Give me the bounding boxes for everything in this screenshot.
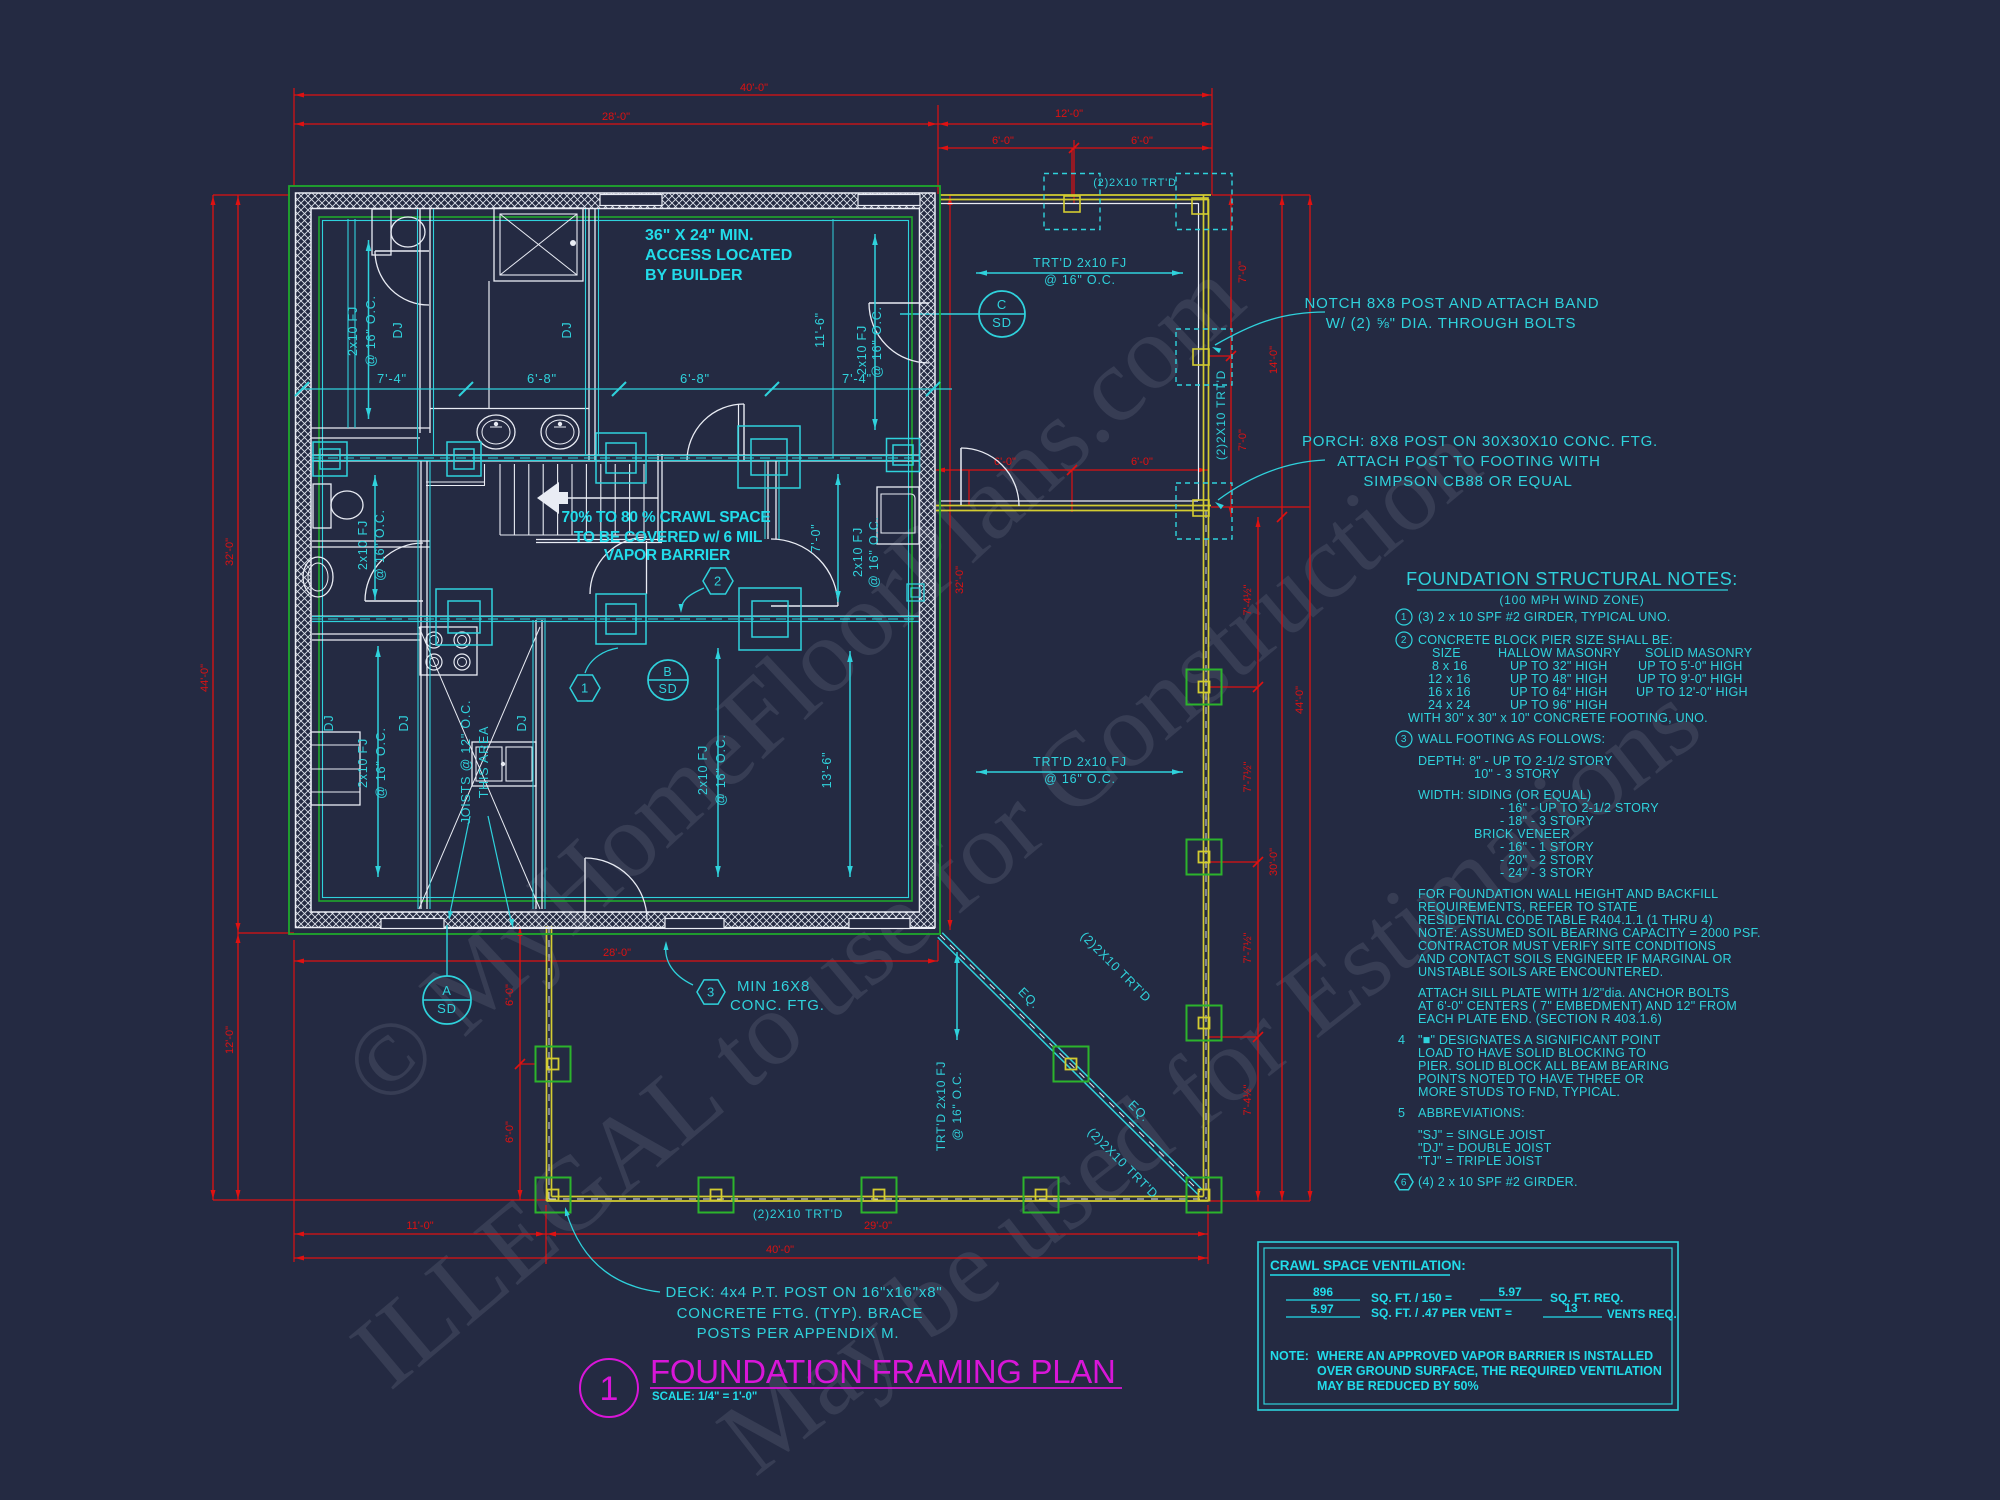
svg-text:SD: SD xyxy=(437,1001,457,1016)
svg-text:5.97: 5.97 xyxy=(1498,1285,1522,1299)
svg-text:"DJ" = DOUBLE JOIST: "DJ" = DOUBLE JOIST xyxy=(1418,1141,1552,1155)
svg-text:7'-4": 7'-4" xyxy=(377,371,407,386)
svg-text:LOAD TO HAVE SOLID BLOCKING TO: LOAD TO HAVE SOLID BLOCKING TO xyxy=(1418,1046,1646,1060)
svg-text:ATTACH SILL PLATE WITH 1/2"dia: ATTACH SILL PLATE WITH 1/2"dia. ANCHOR B… xyxy=(1418,986,1729,1000)
svg-text:12 x 16: 12 x 16 xyxy=(1428,672,1471,686)
svg-text:UP TO 32" HIGH: UP TO 32" HIGH xyxy=(1510,659,1608,673)
svg-text:2x10 FJ: 2x10 FJ xyxy=(855,325,869,375)
svg-text:VAPOR BARRIER: VAPOR BARRIER xyxy=(604,547,730,564)
svg-text:2: 2 xyxy=(714,574,722,589)
svg-text:HALLOW MASONRY: HALLOW MASONRY xyxy=(1498,646,1621,660)
svg-text:ACCESS LOCATED: ACCESS LOCATED xyxy=(645,247,792,264)
svg-text:@ 16" O.C.: @ 16" O.C. xyxy=(373,509,387,581)
svg-text:BY BUILDER: BY BUILDER xyxy=(645,267,743,284)
svg-text:1: 1 xyxy=(581,681,589,696)
svg-text:12'-0": 12'-0" xyxy=(224,1026,236,1054)
svg-text:896: 896 xyxy=(1313,1285,1333,1299)
svg-text:- 16" - 1 STORY: - 16" - 1 STORY xyxy=(1500,840,1594,854)
svg-text:SQ. FT. REQ.: SQ. FT. REQ. xyxy=(1550,1291,1623,1305)
svg-text:6'-8": 6'-8" xyxy=(527,371,557,386)
svg-text:ABBREVIATIONS:: ABBREVIATIONS: xyxy=(1418,1106,1525,1120)
svg-text:@ 16" O.C.: @ 16" O.C. xyxy=(364,295,378,367)
svg-text:UNSTABLE SOILS ARE ENCOUNTERED: UNSTABLE SOILS ARE ENCOUNTERED. xyxy=(1418,965,1663,979)
svg-text:@ 16" O.C.: @ 16" O.C. xyxy=(867,516,881,588)
svg-text:MIN 16X8: MIN 16X8 xyxy=(737,978,810,995)
svg-text:1: 1 xyxy=(1401,612,1407,623)
svg-text:13'-6": 13'-6" xyxy=(820,752,834,789)
svg-text:DJ: DJ xyxy=(391,322,405,339)
svg-text:@ 16" O.C.: @ 16" O.C. xyxy=(714,734,728,806)
svg-text:SCALE: 1/4" = 1'-0": SCALE: 1/4" = 1'-0" xyxy=(652,1391,757,1403)
svg-text:VENTS REQ.: VENTS REQ. xyxy=(1607,1309,1677,1321)
svg-text:5.97: 5.97 xyxy=(1310,1302,1334,1316)
svg-text:NOTE:: NOTE: xyxy=(1270,1349,1309,1363)
svg-text:7'-0": 7'-0" xyxy=(1237,261,1249,283)
svg-text:6'-0": 6'-0" xyxy=(504,984,516,1006)
svg-text:32'-0": 32'-0" xyxy=(224,538,236,566)
svg-text:11'-0": 11'-0" xyxy=(406,1220,433,1232)
svg-text:11'-6": 11'-6" xyxy=(813,312,827,348)
svg-text:3: 3 xyxy=(707,985,715,1000)
svg-text:SIMPSON CB88 OR EQUAL: SIMPSON CB88 OR EQUAL xyxy=(1363,473,1572,490)
svg-text:RESIDENTIAL CODE TABLE R404.1.: RESIDENTIAL CODE TABLE R404.1.1 (1 THRU … xyxy=(1418,913,1713,927)
svg-text:CONTRACTOR MUST VERIFY SITE CO: CONTRACTOR MUST VERIFY SITE CONDITIONS xyxy=(1418,939,1716,953)
svg-text:WALL FOOTING AS FOLLOWS:: WALL FOOTING AS FOLLOWS: xyxy=(1418,732,1605,746)
svg-text:POSTS PER APPENDIX M.: POSTS PER APPENDIX M. xyxy=(697,1325,900,1342)
svg-text:DJ: DJ xyxy=(515,715,529,732)
svg-text:PORCH: 8X8 POST ON 30X30X10 CO: PORCH: 8X8 POST ON 30X30X10 CONC. FTG. xyxy=(1302,433,1658,450)
svg-text:- 16" - UP TO 2-1/2 STORY: - 16" - UP TO 2-1/2 STORY xyxy=(1500,801,1659,815)
svg-text:TRT'D 2x10 FJ: TRT'D 2x10 FJ xyxy=(934,1061,948,1152)
svg-text:6'-0": 6'-0" xyxy=(1131,456,1153,468)
svg-text:@ 16" O.C.: @ 16" O.C. xyxy=(1044,772,1116,786)
svg-text:29'-0": 29'-0" xyxy=(864,1220,892,1232)
svg-text:WIDTH: SIDING (OR EQUAL): WIDTH: SIDING (OR EQUAL) xyxy=(1418,788,1591,802)
svg-text:AND CONTACT SOILS ENGINEER IF: AND CONTACT SOILS ENGINEER IF MARGINAL O… xyxy=(1418,952,1732,966)
svg-text:7'-4½": 7'-4½" xyxy=(1242,1084,1254,1115)
svg-text:2x10 FJ: 2x10 FJ xyxy=(696,745,710,795)
svg-text:NOTE: ASSUMED SOIL BEARING CAP: NOTE: ASSUMED SOIL BEARING CAPACITY = 20… xyxy=(1418,926,1761,940)
svg-text:SD: SD xyxy=(992,315,1012,330)
svg-text:4: 4 xyxy=(1398,1033,1405,1047)
svg-text:- 20" - 2 STORY: - 20" - 2 STORY xyxy=(1500,853,1594,867)
svg-text:WHERE AN APPROVED VAPOR BARRIE: WHERE AN APPROVED VAPOR BARRIER IS INSTA… xyxy=(1317,1349,1653,1363)
svg-text:SD: SD xyxy=(659,682,678,696)
svg-text:JOISTS @ 12" O.C.: JOISTS @ 12" O.C. xyxy=(459,700,473,825)
svg-text:- 18" - 3 STORY: - 18" - 3 STORY xyxy=(1500,814,1594,828)
svg-text:44'-0": 44'-0" xyxy=(199,664,211,692)
svg-text:24 x 24: 24 x 24 xyxy=(1428,698,1471,712)
svg-text:UP TO 64" HIGH: UP TO 64" HIGH xyxy=(1510,685,1608,699)
svg-text:A: A xyxy=(442,983,451,998)
svg-text:PIER. SOLID BLOCK ALL BEAM BEA: PIER. SOLID BLOCK ALL BEAM BEARING xyxy=(1418,1059,1669,1073)
svg-text:(3) 2 x 10 SPF #2 GIRDER, TYPI: (3) 2 x 10 SPF #2 GIRDER, TYPICAL UNO. xyxy=(1418,610,1671,624)
svg-text:(2)2X10 TRT'D: (2)2X10 TRT'D xyxy=(1093,177,1177,189)
svg-text:SIZE: SIZE xyxy=(1432,646,1461,660)
svg-text:UP TO 9'-0" HIGH: UP TO 9'-0" HIGH xyxy=(1638,672,1743,686)
svg-text:- 24" - 3 STORY: - 24" - 3 STORY xyxy=(1500,866,1594,880)
svg-text:6'-0": 6'-0" xyxy=(504,1121,516,1143)
svg-text:DJ: DJ xyxy=(397,715,411,732)
svg-text:@ 16" O.C.: @ 16" O.C. xyxy=(1044,273,1116,287)
svg-text:44'-0": 44'-0" xyxy=(1294,686,1306,714)
svg-text:70% TO 80 % CRAWL SPACE: 70% TO 80 % CRAWL SPACE xyxy=(561,509,770,526)
svg-text:6'-0": 6'-0" xyxy=(994,456,1016,468)
svg-text:SQ. FT. / 150 =: SQ. FT. / 150 = xyxy=(1371,1291,1452,1305)
svg-text:DJ: DJ xyxy=(322,715,336,732)
svg-text:UP TO 48" HIGH: UP TO 48" HIGH xyxy=(1510,672,1608,686)
svg-text:12'-0": 12'-0" xyxy=(1055,108,1083,120)
svg-text:2: 2 xyxy=(1401,635,1407,646)
svg-text:WITH 30" x 30" x 10" CONCRETE: WITH 30" x 30" x 10" CONCRETE FOOTING, U… xyxy=(1408,711,1708,725)
svg-text:2x10 FJ: 2x10 FJ xyxy=(346,306,360,356)
svg-text:UP TO 5'-0" HIGH: UP TO 5'-0" HIGH xyxy=(1638,659,1743,673)
svg-text:TRT'D 2x10 FJ: TRT'D 2x10 FJ xyxy=(1033,256,1127,270)
svg-text:DECK: 4x4 P.T. POST ON 16"x16": DECK: 4x4 P.T. POST ON 16"x16"x8" xyxy=(666,1284,943,1301)
svg-text:6'-8": 6'-8" xyxy=(680,371,710,386)
svg-text:CONCRETE BLOCK PIER SIZE SHALL: CONCRETE BLOCK PIER SIZE SHALL BE: xyxy=(1418,633,1673,647)
svg-text:CRAWL SPACE VENTILATION:: CRAWL SPACE VENTILATION: xyxy=(1270,1258,1466,1273)
svg-text:@ 16" O.C.: @ 16" O.C. xyxy=(870,306,884,378)
svg-text:16 x 16: 16 x 16 xyxy=(1428,685,1471,699)
svg-text:UP TO 12'-0" HIGH: UP TO 12'-0" HIGH xyxy=(1636,685,1748,699)
svg-text:AT 6'-0" CENTERS ( 7" EMBEDMEN: AT 6'-0" CENTERS ( 7" EMBEDMENT) AND 12"… xyxy=(1418,999,1737,1013)
svg-text:SOLID MASONRY: SOLID MASONRY xyxy=(1645,646,1753,660)
svg-text:MORE STUDS TO FND, TYPICAL.: MORE STUDS TO FND, TYPICAL. xyxy=(1418,1085,1620,1099)
svg-text:(4) 2 x 10 SPF #2 GIRDER.: (4) 2 x 10 SPF #2 GIRDER. xyxy=(1418,1175,1578,1189)
svg-text:10" - 3 STORY: 10" - 3 STORY xyxy=(1474,767,1560,781)
svg-text:7'-0": 7'-0" xyxy=(809,524,823,553)
svg-text:BRICK VENEER: BRICK VENEER xyxy=(1474,827,1570,841)
svg-text:B: B xyxy=(663,665,672,679)
svg-text:SQ. FT. / .47 PER VENT =: SQ. FT. / .47 PER VENT = xyxy=(1371,1306,1512,1320)
svg-text:FOR FOUNDATION WALL HEIGHT AND: FOR FOUNDATION WALL HEIGHT AND BACKFILL xyxy=(1418,887,1718,901)
svg-text:40'-0": 40'-0" xyxy=(766,1244,794,1256)
svg-text:7'-7½": 7'-7½" xyxy=(1242,761,1254,792)
svg-text:30'-0": 30'-0" xyxy=(1268,848,1280,876)
svg-text:8 x 16: 8 x 16 xyxy=(1432,659,1468,673)
svg-text:36" X 24" MIN.: 36" X 24" MIN. xyxy=(645,227,754,244)
svg-text:1: 1 xyxy=(600,1370,619,1408)
svg-text:W/ (2) ⅝" DIA. THROUGH BOLTS: W/ (2) ⅝" DIA. THROUGH BOLTS xyxy=(1326,315,1577,332)
svg-text:@ 16" O.C.: @ 16" O.C. xyxy=(950,1071,964,1140)
svg-text:MAY BE REDUCED BY 50%: MAY BE REDUCED BY 50% xyxy=(1317,1379,1479,1393)
svg-text:CONC. FTG.: CONC. FTG. xyxy=(730,997,825,1014)
svg-text:FOUNDATION STRUCTURAL NOTES:: FOUNDATION STRUCTURAL NOTES: xyxy=(1406,569,1738,589)
svg-text:7'-7½": 7'-7½" xyxy=(1242,932,1254,963)
svg-text:7'-4½": 7'-4½" xyxy=(1242,584,1254,615)
svg-text:5: 5 xyxy=(1398,1106,1405,1120)
svg-text:EACH PLATE END. (SECTION R 403: EACH PLATE END. (SECTION R 403.1.6) xyxy=(1418,1012,1662,1026)
svg-text:TO BE COVERED w/ 6 MIL: TO BE COVERED w/ 6 MIL xyxy=(574,529,762,546)
svg-text:FOUNDATION FRAMING PLAN: FOUNDATION FRAMING PLAN xyxy=(650,1353,1116,1390)
svg-text:28'-0": 28'-0" xyxy=(602,111,630,123)
svg-text:28'-0": 28'-0" xyxy=(603,947,631,959)
svg-text:OVER GROUND SURFACE, THE REQUI: OVER GROUND SURFACE, THE REQUIRED VENTIL… xyxy=(1317,1364,1662,1378)
svg-text:(2)2X10 TRT'D: (2)2X10 TRT'D xyxy=(753,1207,843,1221)
svg-text:"SJ" = SINGLE JOIST: "SJ" = SINGLE JOIST xyxy=(1418,1128,1545,1142)
svg-text:7'-0": 7'-0" xyxy=(1237,429,1249,451)
svg-text:"TJ" = TRIPLE JOIST: "TJ" = TRIPLE JOIST xyxy=(1418,1154,1542,1168)
svg-text:6'-0": 6'-0" xyxy=(1131,135,1153,147)
svg-text:ATTACH POST TO FOOTING WITH: ATTACH POST TO FOOTING WITH xyxy=(1337,453,1601,470)
svg-text:REQUIREMENTS, REFER TO STATE: REQUIREMENTS, REFER TO STATE xyxy=(1418,900,1637,914)
svg-text:"■" DESIGNATES A SIGNIFICANT P: "■" DESIGNATES A SIGNIFICANT POINT xyxy=(1418,1033,1661,1047)
svg-text:CONCRETE FTG. (TYP). BRACE: CONCRETE FTG. (TYP). BRACE xyxy=(677,1305,924,1322)
svg-text:13: 13 xyxy=(1564,1301,1578,1315)
svg-text:2x10 FJ: 2x10 FJ xyxy=(851,527,865,577)
svg-text:DEPTH: 8" - UP TO 2-1/2 STORY: DEPTH: 8" - UP TO 2-1/2 STORY xyxy=(1418,754,1613,768)
svg-text:@ 16" O.C.: @ 16" O.C. xyxy=(374,727,388,799)
svg-text:3: 3 xyxy=(1401,734,1407,745)
svg-text:14'-0": 14'-0" xyxy=(1268,346,1280,374)
svg-text:UP TO 96" HIGH: UP TO 96" HIGH xyxy=(1510,698,1608,712)
svg-text:POINTS NOTED TO HAVE THREE OR: POINTS NOTED TO HAVE THREE OR xyxy=(1418,1072,1644,1086)
svg-text:2x10 FJ: 2x10 FJ xyxy=(356,520,370,570)
svg-text:40'-0": 40'-0" xyxy=(740,82,768,94)
svg-text:DJ: DJ xyxy=(560,322,574,339)
svg-text:TRT'D 2x10 FJ: TRT'D 2x10 FJ xyxy=(1033,755,1127,769)
svg-text:NOTCH 8X8 POST AND ATTACH BAND: NOTCH 8X8 POST AND ATTACH BAND xyxy=(1305,295,1600,312)
svg-text:6: 6 xyxy=(1401,1178,1407,1189)
svg-text:32'-0": 32'-0" xyxy=(954,566,966,594)
svg-text:(100 MPH WIND ZONE): (100 MPH WIND ZONE) xyxy=(1499,593,1644,607)
svg-text:C: C xyxy=(997,297,1007,312)
svg-text:THIS AREA: THIS AREA xyxy=(477,726,491,799)
svg-text:(2)2X10 TRT'D: (2)2X10 TRT'D xyxy=(1214,370,1228,460)
svg-text:2x10 FJ: 2x10 FJ xyxy=(356,738,370,788)
svg-text:6'-0": 6'-0" xyxy=(992,135,1014,147)
